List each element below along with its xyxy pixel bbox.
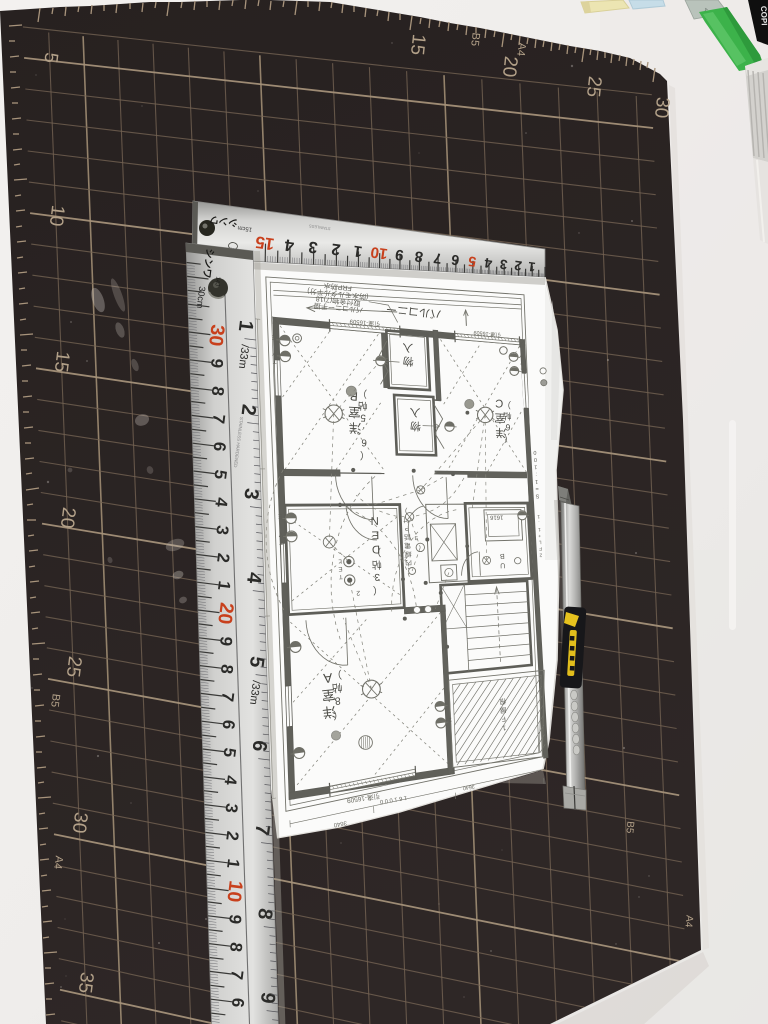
svg-text:30: 30 bbox=[650, 96, 673, 119]
svg-text:2: 2 bbox=[404, 555, 407, 561]
svg-text:電: 電 bbox=[404, 541, 411, 549]
svg-text:1616: 1616 bbox=[489, 514, 503, 520]
svg-text:B5: B5 bbox=[623, 821, 635, 835]
svg-text:帖: 帖 bbox=[502, 411, 511, 422]
svg-text:2: 2 bbox=[356, 589, 360, 596]
svg-text:15: 15 bbox=[406, 33, 429, 56]
svg-text:（: （ bbox=[332, 707, 344, 721]
svg-text:F: F bbox=[501, 715, 506, 722]
svg-text:.: . bbox=[362, 424, 365, 435]
svg-text:14J: 14J bbox=[213, 276, 220, 286]
svg-text:35: 35 bbox=[74, 971, 97, 995]
svg-text:1: 1 bbox=[534, 463, 537, 469]
svg-text:入: 入 bbox=[409, 406, 421, 418]
svg-text:+: + bbox=[538, 532, 541, 537]
svg-text:物: 物 bbox=[402, 354, 414, 368]
svg-text:=: = bbox=[535, 485, 538, 491]
svg-text:（: （ bbox=[373, 583, 384, 595]
svg-text:20: 20 bbox=[213, 601, 237, 625]
svg-text:入: 入 bbox=[402, 341, 414, 354]
svg-text:2: 2 bbox=[539, 552, 542, 558]
svg-text:0: 0 bbox=[534, 456, 537, 462]
svg-text:T: T bbox=[272, 357, 276, 364]
svg-text:）: ） bbox=[502, 399, 511, 409]
svg-text:（: （ bbox=[504, 434, 513, 444]
svg-text:.: . bbox=[538, 519, 539, 524]
svg-text:10: 10 bbox=[45, 204, 68, 228]
svg-text:6: 6 bbox=[361, 437, 367, 448]
svg-text:帖: 帖 bbox=[357, 399, 368, 412]
svg-text:T: T bbox=[279, 538, 283, 545]
svg-text:25: 25 bbox=[582, 75, 605, 98]
svg-text:L: L bbox=[538, 539, 541, 545]
svg-text:）: ） bbox=[371, 546, 381, 558]
svg-text:COPI: COPI bbox=[759, 6, 768, 26]
svg-text:1: 1 bbox=[537, 513, 540, 519]
svg-text:A4: A4 bbox=[51, 855, 65, 870]
svg-text:A4: A4 bbox=[514, 42, 527, 57]
svg-text:A4: A4 bbox=[682, 915, 694, 929]
svg-text:20: 20 bbox=[56, 506, 79, 530]
svg-text:U: U bbox=[500, 561, 506, 570]
svg-text:10: 10 bbox=[370, 243, 389, 262]
svg-text:F: F bbox=[539, 545, 542, 551]
svg-text:15: 15 bbox=[50, 350, 73, 374]
svg-text:30: 30 bbox=[68, 811, 91, 835]
svg-text:B5: B5 bbox=[468, 32, 481, 47]
svg-text:1: 1 bbox=[535, 478, 538, 484]
svg-text:S: S bbox=[535, 493, 539, 499]
svg-text:T: T bbox=[339, 573, 343, 580]
svg-text:帖: 帖 bbox=[331, 681, 343, 695]
svg-text:20: 20 bbox=[498, 55, 521, 78]
svg-text:E: E bbox=[278, 512, 282, 519]
svg-text:10: 10 bbox=[222, 879, 246, 903]
svg-text:E: E bbox=[338, 565, 342, 572]
svg-text:（: （ bbox=[360, 449, 370, 461]
svg-text:B: B bbox=[500, 552, 505, 561]
svg-text:洋: 洋 bbox=[348, 420, 362, 434]
svg-text:）: ） bbox=[331, 668, 343, 681]
svg-text:）: ） bbox=[357, 387, 367, 400]
svg-text:物: 物 bbox=[410, 419, 421, 432]
svg-text:1: 1 bbox=[538, 526, 541, 532]
svg-text:E: E bbox=[371, 528, 379, 540]
svg-text:3: 3 bbox=[374, 571, 380, 582]
svg-text:6: 6 bbox=[505, 422, 510, 432]
svg-text:帖: 帖 bbox=[371, 558, 381, 571]
svg-text:屋: 屋 bbox=[499, 706, 507, 715]
svg-text:B5: B5 bbox=[48, 693, 62, 708]
svg-text:0: 0 bbox=[533, 449, 536, 455]
svg-text:3: 3 bbox=[414, 534, 417, 540]
svg-text:30: 30 bbox=[204, 323, 228, 347]
svg-text:25: 25 bbox=[62, 655, 85, 679]
svg-text:5: 5 bbox=[360, 412, 366, 423]
svg-text:15: 15 bbox=[254, 232, 275, 253]
svg-text:E: E bbox=[272, 334, 277, 341]
